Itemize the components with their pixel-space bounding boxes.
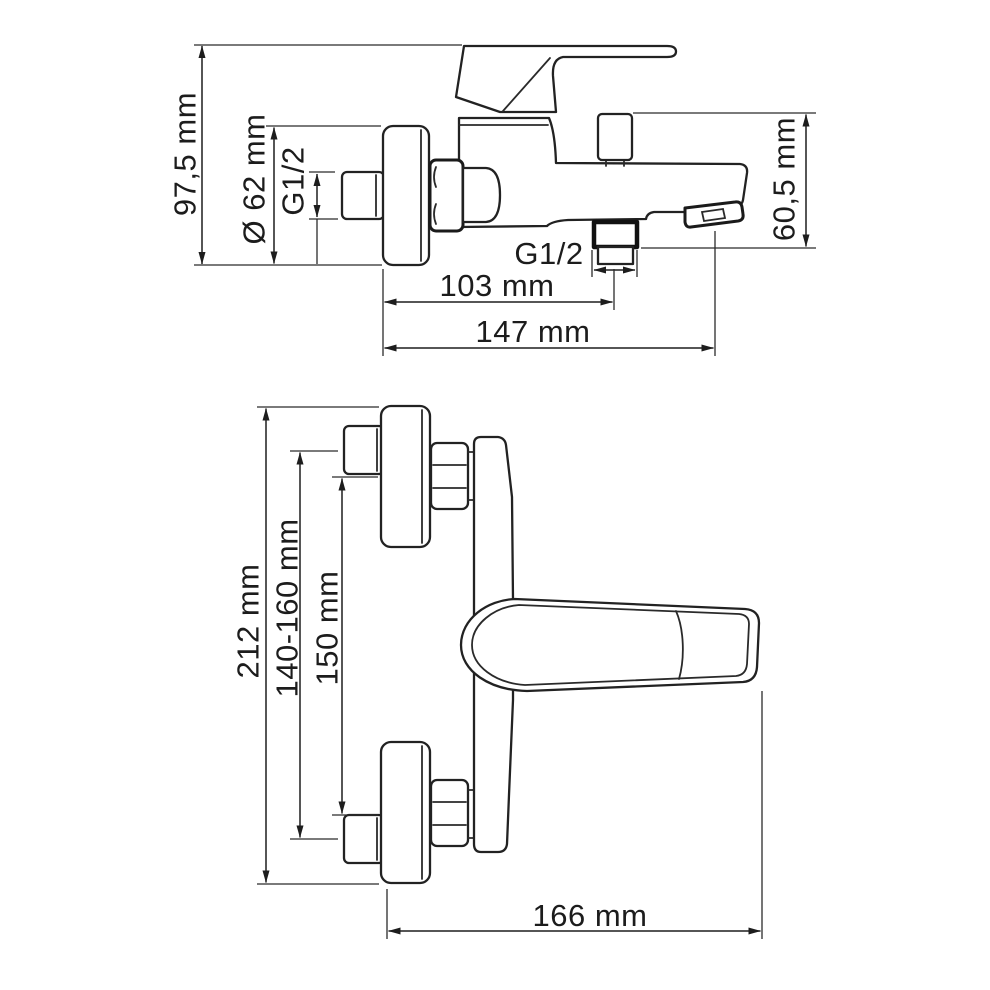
diverter-knob: [598, 114, 632, 166]
shower-outlet-connector: [594, 222, 637, 264]
lever-handle-elevation: [461, 599, 759, 691]
dim-label-wall-inlet-thread: G1/2: [276, 146, 311, 215]
dimension-overall-height: 212 mm: [231, 407, 380, 884]
dim-label-wall-to-shower-outlet: 103 mm: [440, 268, 555, 303]
dim-label-overall-width: 166 mm: [533, 898, 648, 933]
dim-label-mounting-centers-range: 140-160 mm: [270, 518, 305, 697]
dim-label-escutcheon-diameter: Ø 62 mm: [237, 114, 272, 245]
elevation-view-drawing: 212 mm 140-160 mm 150 mm 166 mm: [231, 406, 763, 939]
body-cylinder: [463, 168, 500, 222]
dim-label-overall-depth: 97,5 mm: [168, 92, 203, 216]
hex-nut: [430, 160, 463, 231]
dimension-connection-centers: 150 mm: [310, 477, 379, 815]
bottom-wall-union: [344, 742, 474, 883]
aerator: [685, 202, 743, 227]
dim-label-spout-reach: 147 mm: [476, 314, 591, 349]
dim-label-spout-drop-height: 60,5 mm: [767, 117, 802, 241]
technical-drawing-canvas: 97,5 mm Ø 62 mm G1/2 G1/2 103 mm: [0, 0, 990, 990]
dim-label-connection-centers: 150 mm: [310, 571, 345, 686]
dim-label-overall-height: 212 mm: [231, 564, 266, 679]
lever-handle-plan: [456, 46, 676, 112]
dimension-wall-inlet-thread: G1/2: [276, 146, 339, 264]
faucet-dimension-drawing: 97,5 mm Ø 62 mm G1/2 G1/2 103 mm: [0, 0, 990, 990]
dim-label-shower-outlet-thread: G1/2: [514, 236, 583, 271]
escutcheon-flange: [383, 126, 429, 265]
plan-view-drawing: 97,5 mm Ø 62 mm G1/2 G1/2 103 mm: [168, 45, 817, 356]
wall-nipple: [342, 172, 384, 219]
